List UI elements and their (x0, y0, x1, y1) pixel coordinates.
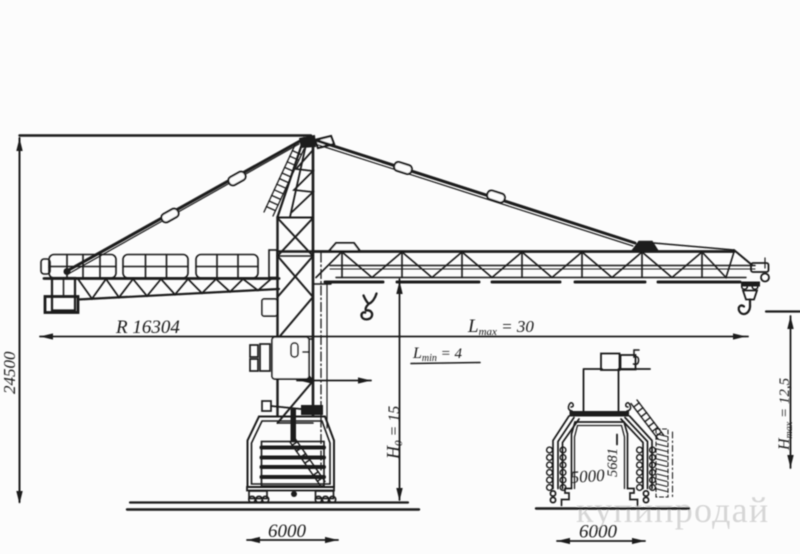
svg-text:H0 = 15: H0 = 15 (383, 406, 405, 460)
svg-text:Hmax = 12,5: Hmax = 12,5 (776, 377, 795, 451)
svg-text:5000: 5000 (570, 466, 606, 487)
svg-text:Lmax = 30: Lmax = 30 (467, 316, 534, 338)
svg-text:Lmin = 4: Lmin = 4 (412, 345, 463, 364)
svg-text:6000: 6000 (579, 522, 618, 543)
svg-text:6000: 6000 (268, 521, 307, 542)
svg-text:5681: 5681 (605, 448, 621, 477)
svg-text:24500: 24500 (0, 351, 19, 394)
svg-text:R 16304: R 16304 (115, 317, 180, 338)
